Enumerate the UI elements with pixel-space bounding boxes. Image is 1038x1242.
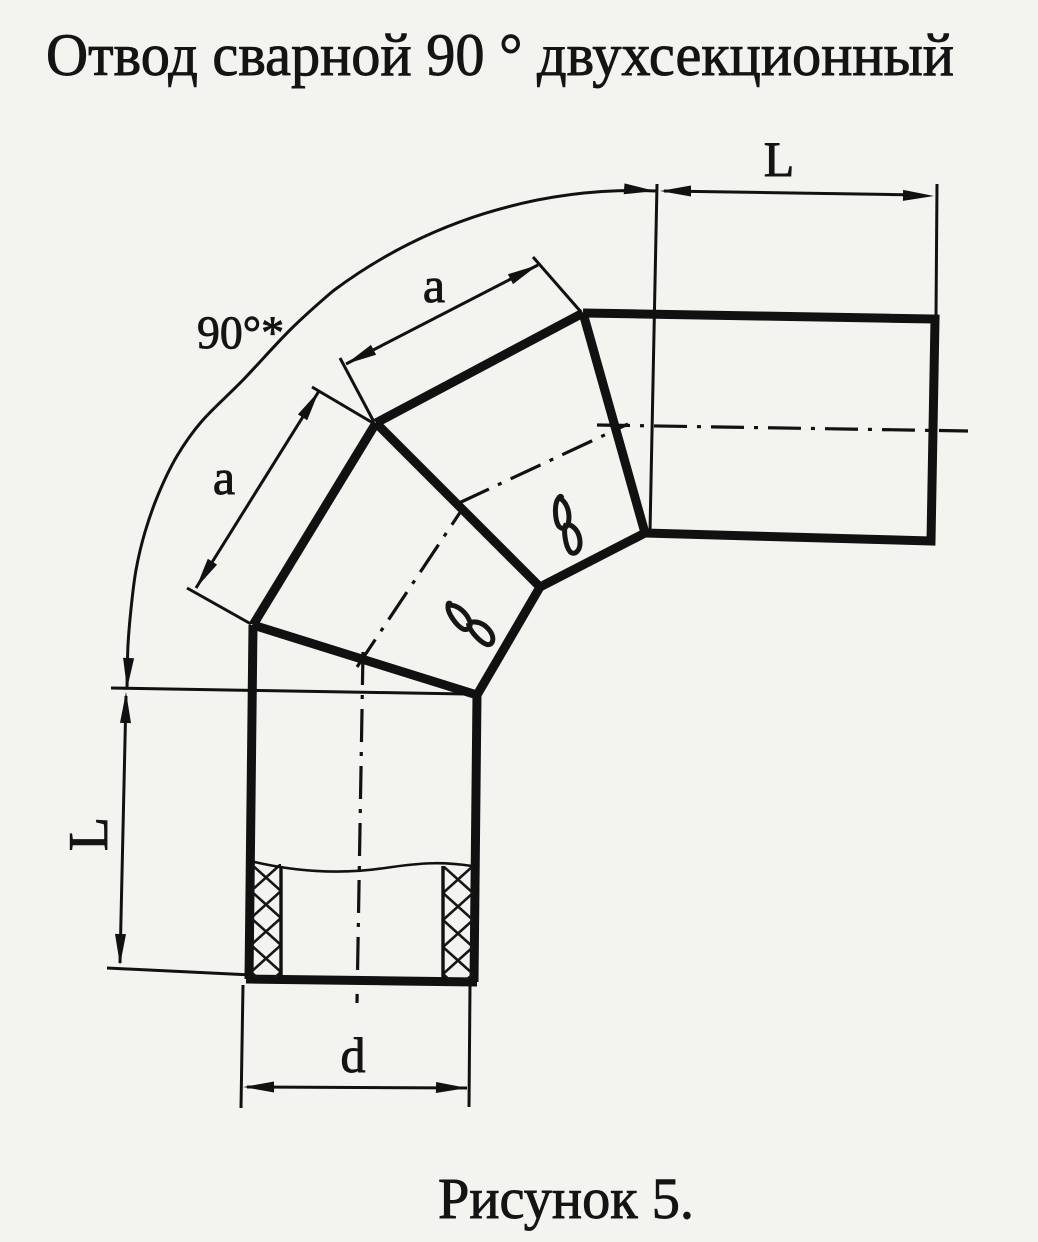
- svg-text:a: a: [213, 449, 235, 505]
- svg-text:L: L: [764, 131, 795, 187]
- svg-text:L: L: [58, 817, 120, 851]
- svg-text:a: a: [423, 257, 445, 313]
- svg-text:Рисунок 5.: Рисунок 5.: [438, 1166, 694, 1231]
- svg-text:d: d: [341, 1027, 366, 1083]
- svg-text:90°*: 90°*: [197, 307, 284, 359]
- svg-text:Отвод сварной 90 ° двухсекцион: Отвод сварной 90 ° двухсекционный: [46, 22, 954, 88]
